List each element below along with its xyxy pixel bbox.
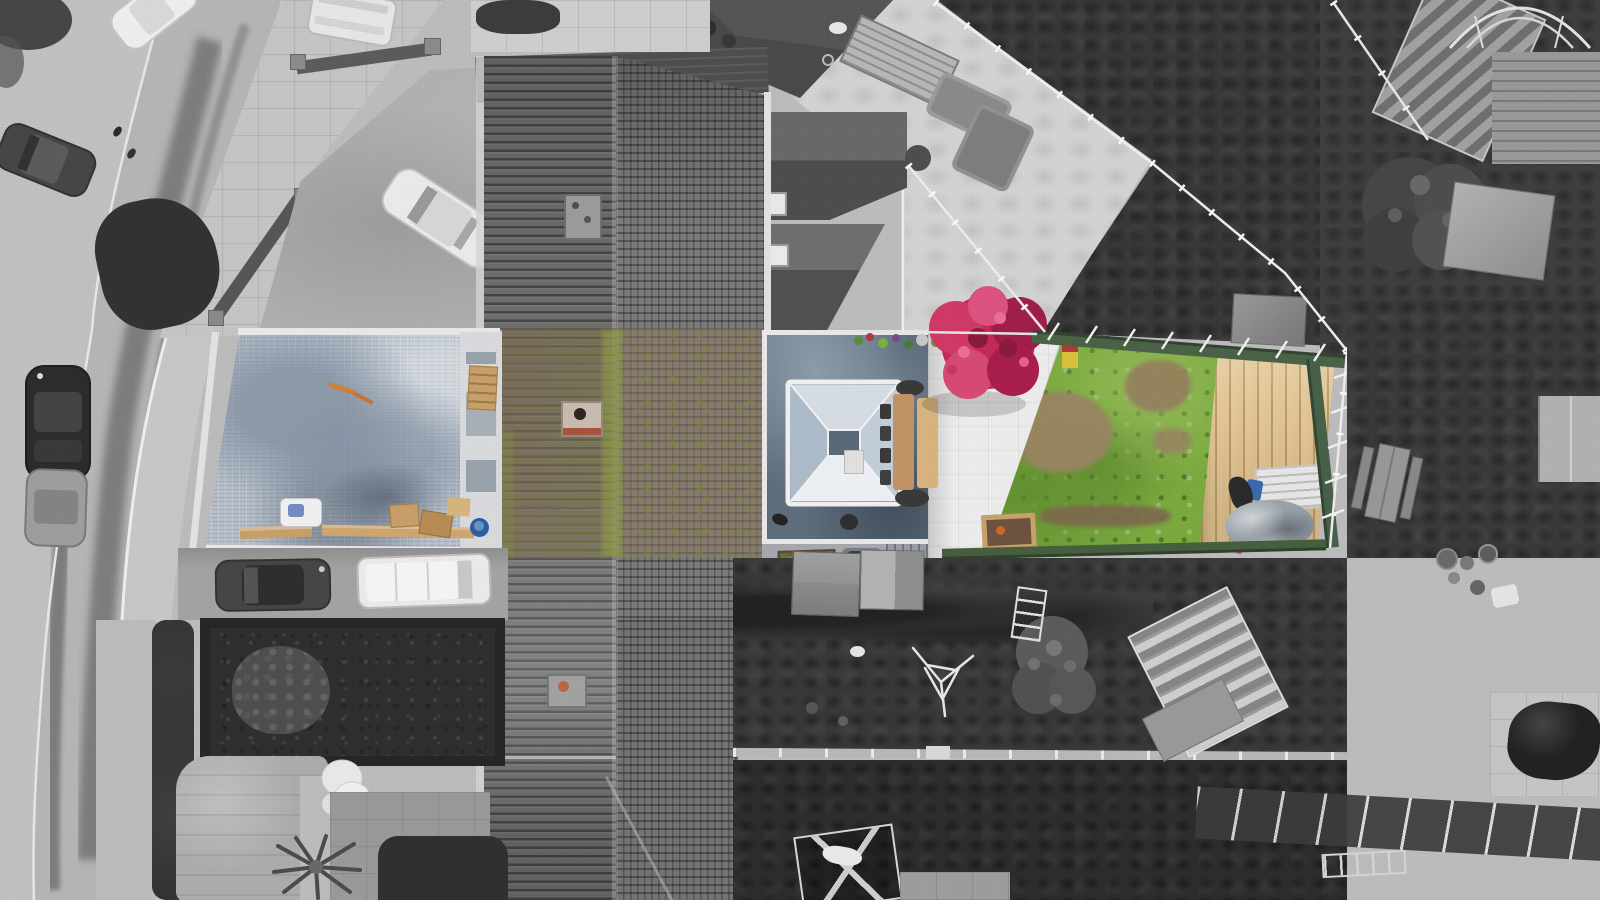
ladder-on-ground — [1321, 850, 1406, 878]
garden-pot — [1448, 572, 1460, 584]
trampoline — [793, 823, 903, 900]
garden-pot — [1470, 580, 1485, 595]
paving-path-bottom-center — [900, 872, 1010, 900]
sidewalk-lower-left — [96, 620, 156, 900]
car-dark-parked — [214, 555, 333, 615]
palm-plant — [268, 834, 364, 900]
shed-roof-a — [791, 551, 861, 617]
aerial-photo-canvas — [0, 0, 1600, 900]
garden-pot — [806, 702, 818, 714]
garden-bush-round — [232, 646, 330, 734]
garden-pot — [1436, 548, 1458, 570]
rotary-dryer — [903, 642, 979, 718]
garden-pot — [1460, 556, 1474, 570]
shed-roof-b — [859, 549, 924, 610]
fence-gate — [926, 746, 950, 759]
van-white-parked — [355, 550, 493, 613]
board-on-trampoline — [821, 843, 864, 868]
dark-bed-bottom-left — [378, 836, 508, 900]
garden-pot — [838, 716, 848, 726]
garden-pot — [1478, 544, 1498, 564]
shed-roof-right-edge — [1538, 396, 1600, 482]
watering-can — [850, 646, 865, 657]
